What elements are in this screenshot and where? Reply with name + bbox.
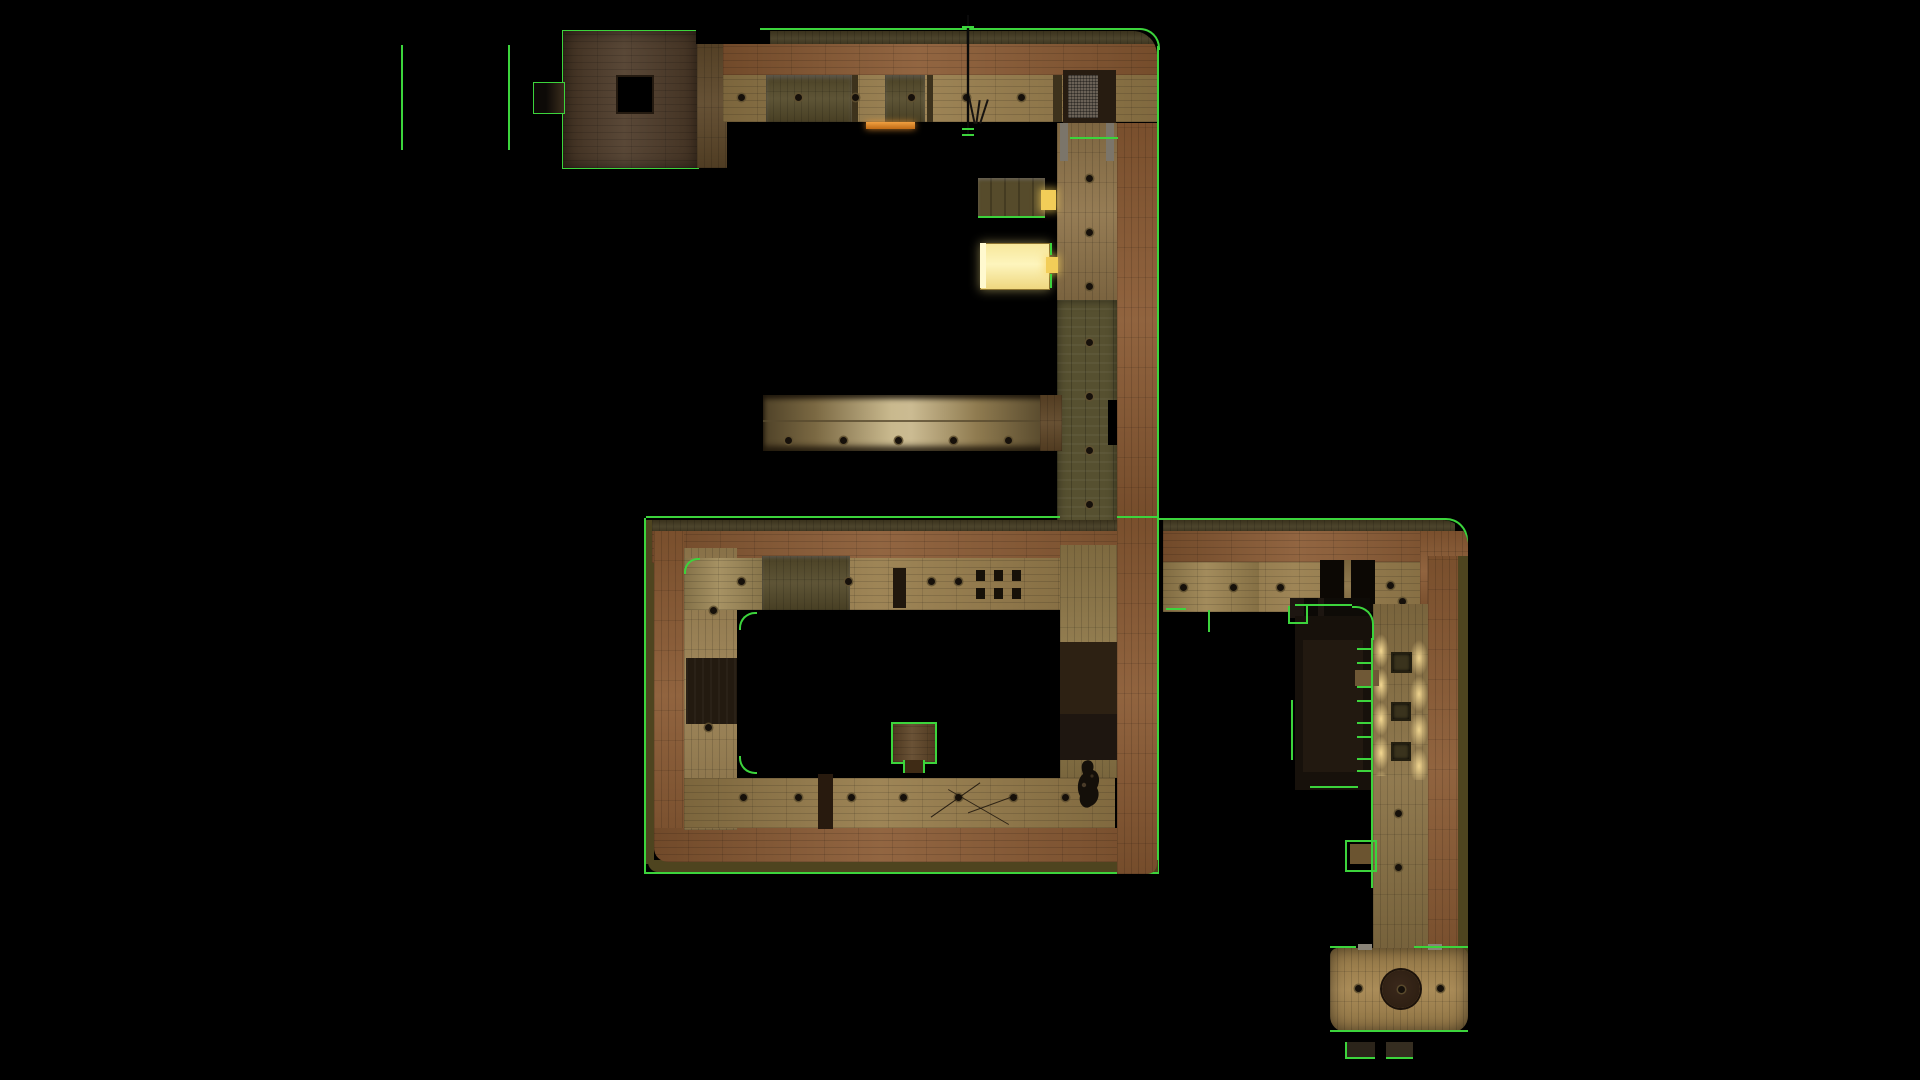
screw xyxy=(908,94,915,101)
floor-hole xyxy=(994,588,1003,599)
gate-bar xyxy=(818,774,833,829)
screw xyxy=(795,94,802,101)
screw xyxy=(1395,810,1402,817)
floor-hatch xyxy=(618,77,652,112)
outline-tick xyxy=(1357,770,1371,772)
outline-tick xyxy=(1357,722,1371,724)
screw xyxy=(785,437,792,444)
screw xyxy=(1355,985,1362,992)
locker-room xyxy=(978,178,1045,218)
screw xyxy=(738,578,745,585)
brass-end-cap xyxy=(1040,395,1062,451)
screw xyxy=(845,578,852,585)
right-strip-dark xyxy=(1060,642,1117,714)
ring-outline-bottom xyxy=(646,872,1159,874)
outline-seg xyxy=(1414,946,1468,948)
dark-side-room-floor xyxy=(1303,640,1363,772)
screw xyxy=(1230,584,1237,591)
floor-hole xyxy=(1012,588,1021,599)
locker-room-outline xyxy=(978,216,1045,218)
outline-tick xyxy=(1357,686,1371,688)
bright-room-edge xyxy=(980,243,986,288)
gray-cap xyxy=(1106,123,1114,161)
left-dark-door xyxy=(686,658,737,724)
screw xyxy=(1086,501,1093,508)
screw xyxy=(1277,584,1284,591)
yellow-door-2 xyxy=(1046,257,1058,273)
screw xyxy=(1398,986,1405,993)
rope-tick xyxy=(962,26,974,28)
floor-hole xyxy=(994,570,1003,581)
screw xyxy=(1086,447,1093,454)
screw xyxy=(895,437,902,444)
locker-panel-1 xyxy=(766,75,852,122)
lower-vcorr-olive xyxy=(1458,556,1468,980)
pedestal-stem xyxy=(903,760,925,773)
screw xyxy=(900,794,907,801)
screw xyxy=(840,437,847,444)
floor-hole xyxy=(976,570,985,581)
east-floor-light xyxy=(1163,562,1259,612)
outline-seg xyxy=(1050,274,1052,288)
rope-tick xyxy=(962,128,974,130)
screw xyxy=(955,578,962,585)
floor-grate xyxy=(1391,652,1412,673)
outline-seg xyxy=(1330,946,1356,948)
screw xyxy=(848,794,855,801)
outline-room-bottom xyxy=(1330,1030,1468,1032)
loose-crate xyxy=(1345,1042,1375,1059)
ring-floor-bottom xyxy=(684,778,1115,828)
rope xyxy=(967,15,969,135)
ring-olive-left xyxy=(646,520,654,864)
outline-tick xyxy=(1357,700,1371,702)
window-glow-right xyxy=(1410,640,1428,780)
brass-seam xyxy=(763,420,1048,422)
screw xyxy=(705,724,712,731)
screw xyxy=(1086,393,1093,400)
floor-hole xyxy=(1012,570,1021,581)
upper-vcorr-border xyxy=(1117,123,1157,518)
screw xyxy=(950,437,957,444)
screw xyxy=(1387,582,1394,589)
ring-outline-top xyxy=(646,516,1060,518)
gray-cap xyxy=(1060,123,1068,161)
moss-door-notch xyxy=(1108,400,1117,445)
wood-bit xyxy=(1355,670,1379,686)
screw xyxy=(1062,794,1069,801)
bright-yellow-room xyxy=(980,243,1050,290)
outline-line-b xyxy=(508,45,510,150)
loose-crate xyxy=(1386,1042,1413,1059)
screw xyxy=(1086,229,1093,236)
screw xyxy=(928,578,935,585)
player-figure-sprite xyxy=(1074,758,1104,814)
floor-grate xyxy=(1391,702,1411,721)
panel-divider xyxy=(927,75,933,122)
door-post xyxy=(1358,944,1372,950)
panel-divider xyxy=(1053,75,1062,122)
courtyard-pedestal xyxy=(891,722,937,764)
outline-vent-line xyxy=(1070,137,1118,139)
crate-vent xyxy=(1068,75,1098,118)
screw xyxy=(795,794,802,801)
ring-border-right xyxy=(1117,518,1157,874)
window-glow-left xyxy=(1373,634,1389,776)
outline-tick xyxy=(1166,608,1186,610)
screw xyxy=(1437,985,1444,992)
screw xyxy=(1086,339,1093,346)
outline-seg xyxy=(1291,700,1293,760)
screw xyxy=(1395,864,1402,871)
ring-border-bottom xyxy=(654,828,1157,862)
right-strip-darker xyxy=(1060,714,1117,760)
screw xyxy=(1018,94,1025,101)
outline-line-a xyxy=(401,45,403,150)
outline-tick xyxy=(1357,662,1371,664)
screw xyxy=(1005,437,1012,444)
grime-square xyxy=(762,556,850,610)
orange-lit-doorway xyxy=(866,122,915,129)
lower-vcorr-border xyxy=(1428,556,1458,980)
side-nook xyxy=(533,82,565,114)
outline-notch xyxy=(1288,606,1308,624)
top-corridor-outline-top xyxy=(700,28,1140,30)
locker-panel-2 xyxy=(885,75,925,122)
outline-tick xyxy=(1357,758,1371,760)
screw xyxy=(738,94,745,101)
top-corridor xyxy=(723,31,1157,135)
screw xyxy=(852,94,859,101)
ring-border-left xyxy=(654,531,684,861)
rope-tick xyxy=(962,134,974,136)
outline-box xyxy=(1345,840,1377,872)
screw xyxy=(710,607,717,614)
outline-seg xyxy=(1310,786,1358,788)
top-strip-slot xyxy=(893,568,906,608)
yellow-door-1 xyxy=(1041,190,1056,210)
screw xyxy=(1180,584,1187,591)
screw xyxy=(1086,175,1093,182)
outline-tick xyxy=(1357,736,1371,738)
outline-tick xyxy=(1357,648,1371,650)
outline-tick xyxy=(1208,610,1210,632)
floor-grate xyxy=(1391,742,1411,761)
screw xyxy=(740,794,747,801)
level-map-overview xyxy=(0,0,1920,1080)
outline-right-vertical xyxy=(1157,46,1159,874)
floor-hole xyxy=(976,588,985,599)
screw xyxy=(1086,283,1093,290)
outline-seg xyxy=(1050,243,1052,255)
